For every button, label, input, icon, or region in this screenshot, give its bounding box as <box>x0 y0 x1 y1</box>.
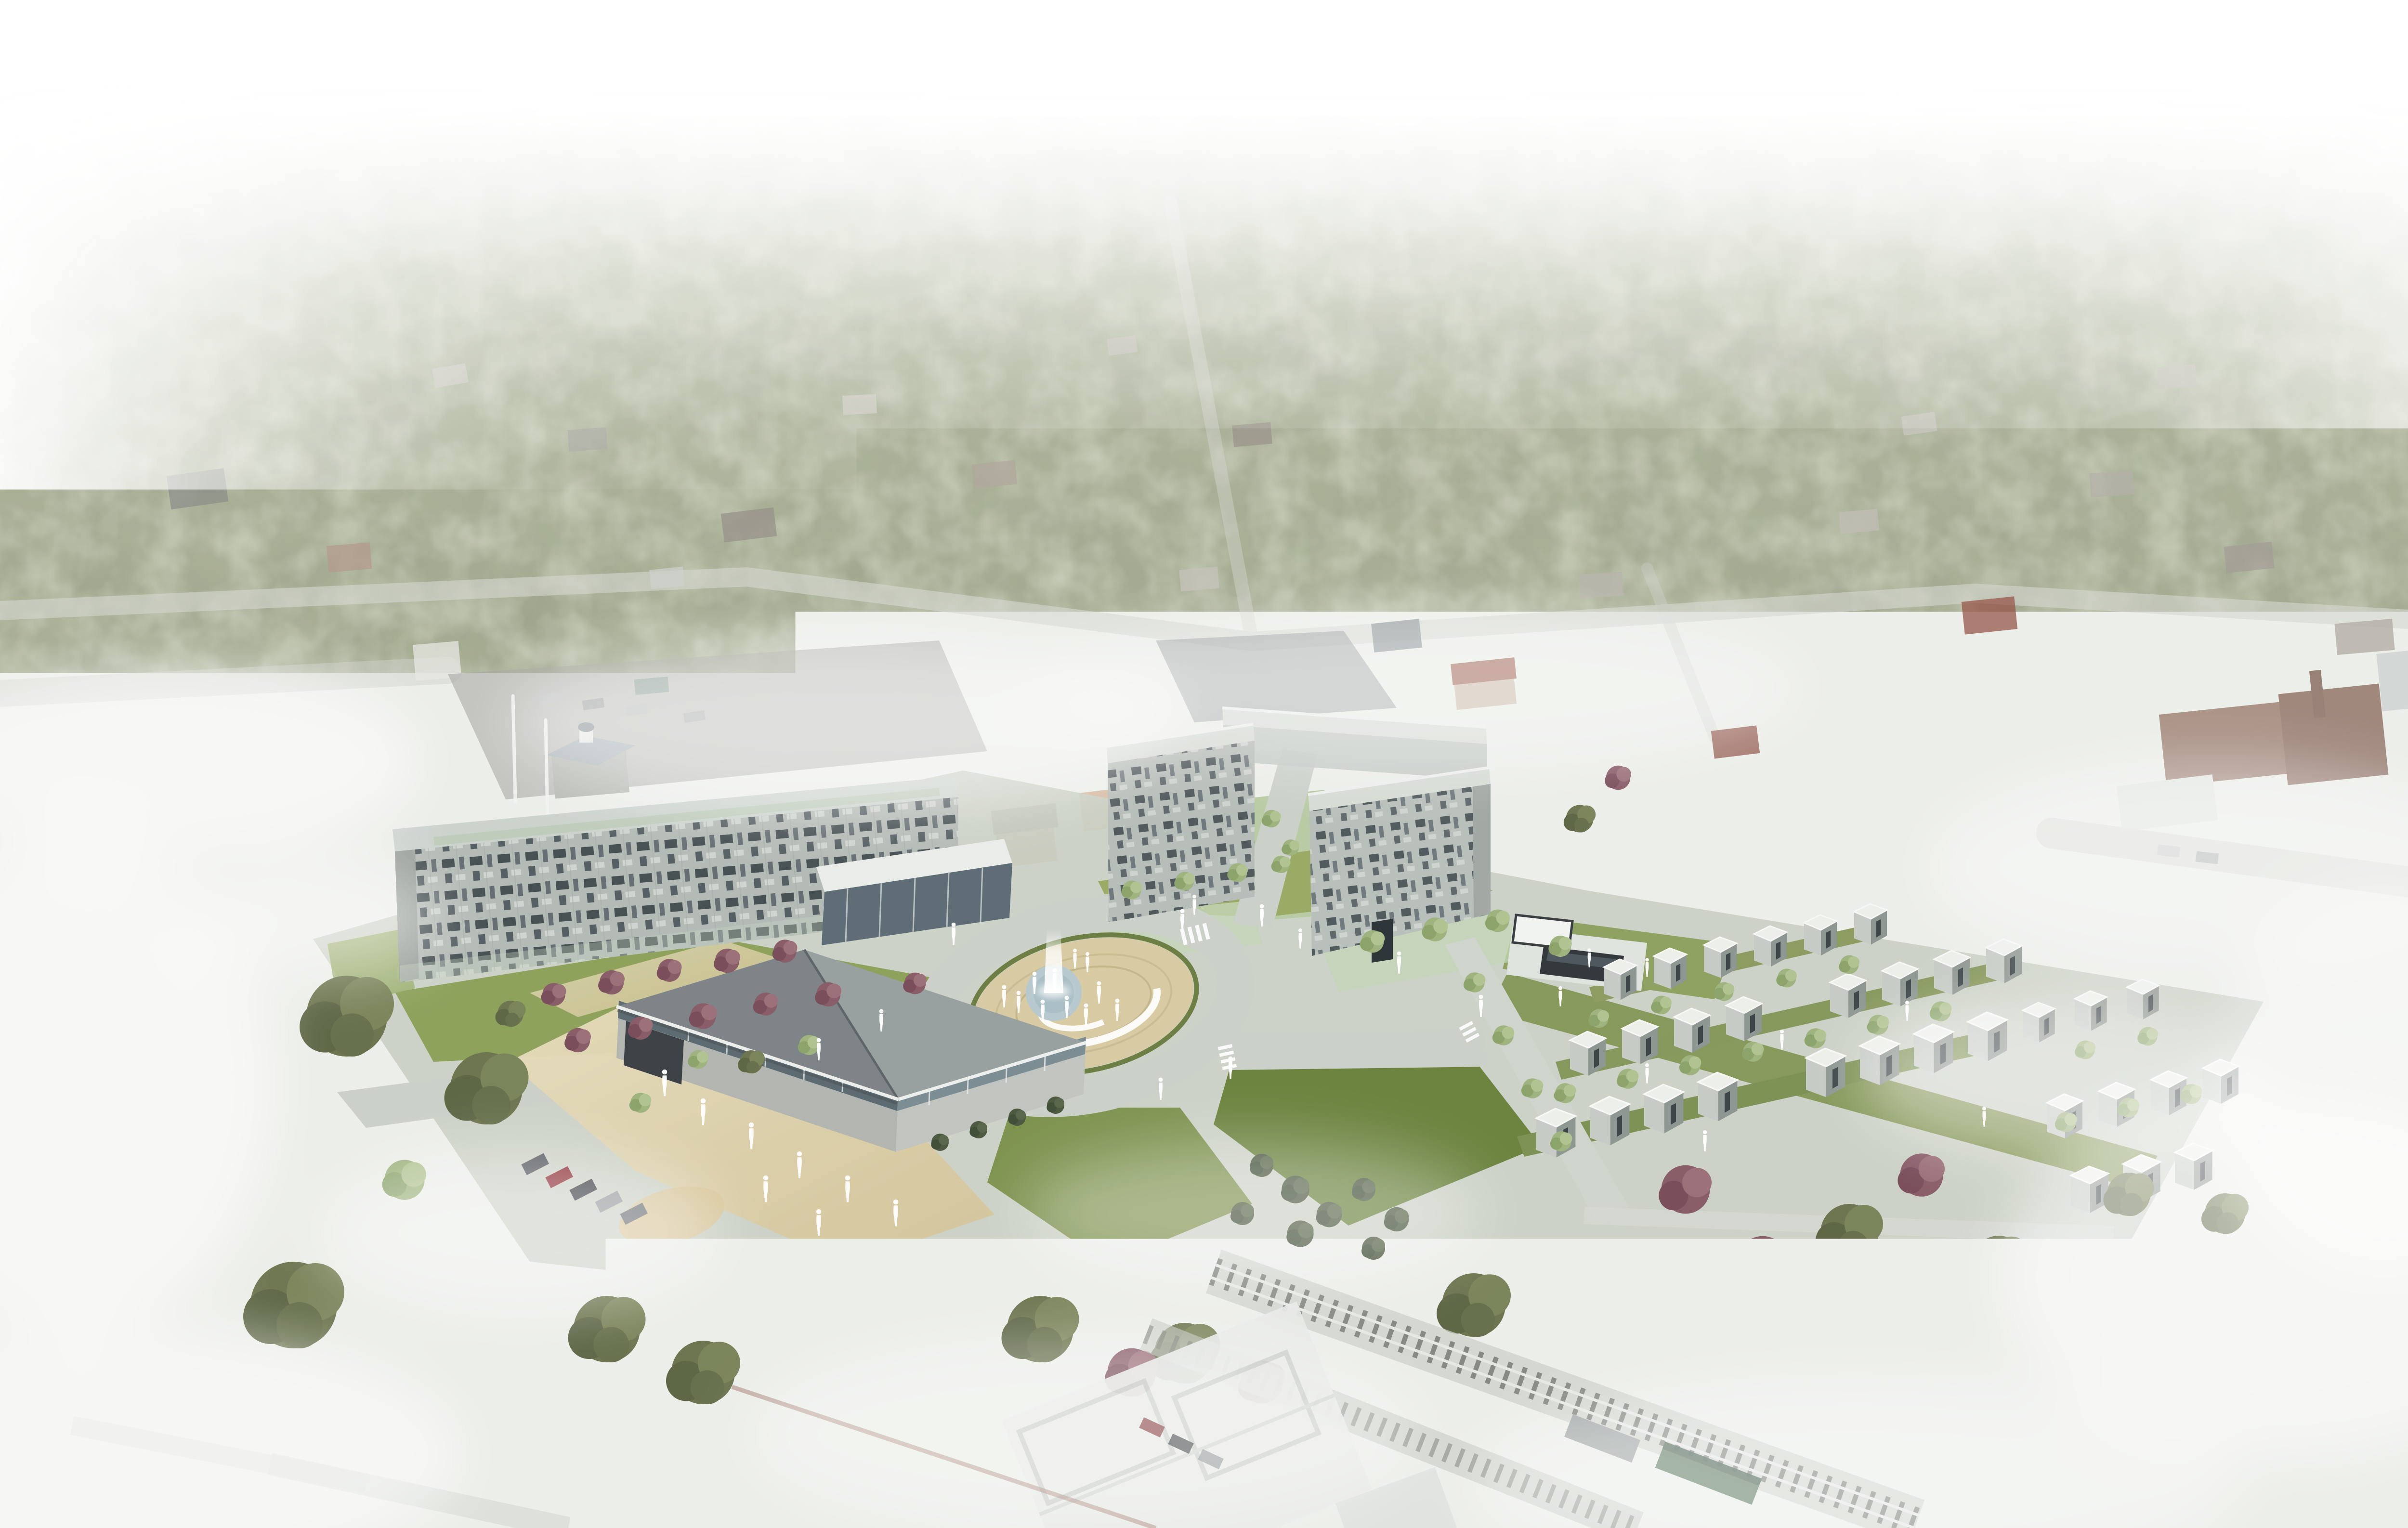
atmospheric-haze <box>0 0 2408 1528</box>
watermark: Trivers <box>2311 1378 2408 1528</box>
watermark-label: Trivers <box>2395 1378 2408 1522</box>
aerial-rendering: Trivers <box>0 0 2408 1528</box>
watermark-box <box>2311 1381 2408 1528</box>
rendering-canvas: Trivers <box>0 0 2408 1528</box>
